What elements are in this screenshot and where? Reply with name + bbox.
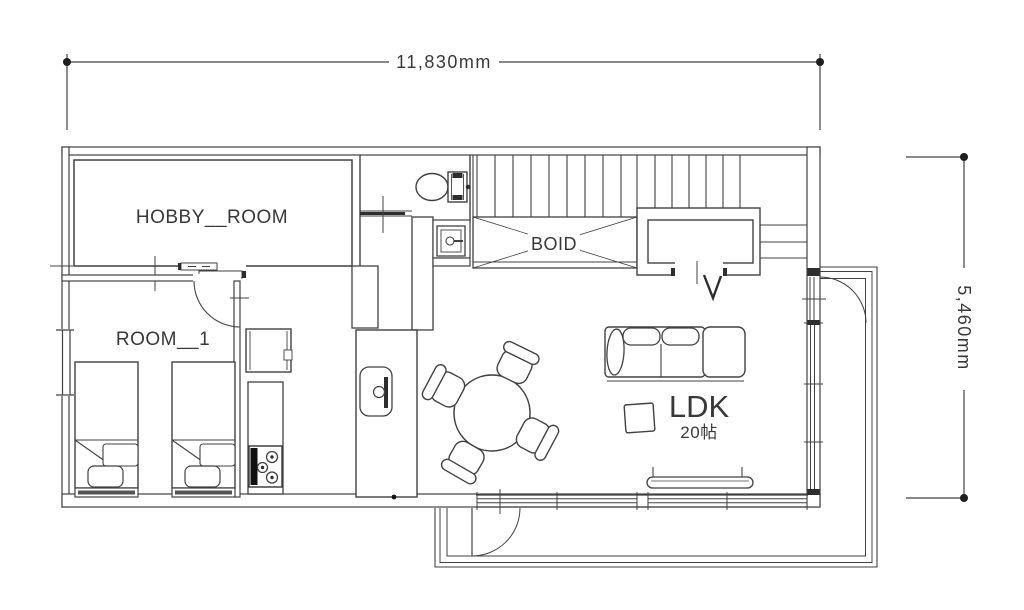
sofa [605, 327, 745, 381]
kitchen [246, 329, 417, 499]
folding-door-icon [704, 275, 721, 298]
room1-door-arc [194, 281, 240, 327]
sliding-door-leaf [181, 263, 217, 270]
closet [637, 208, 760, 298]
sofa-cushion [662, 328, 699, 345]
deck-entry-arc [472, 508, 520, 556]
height-dimension-label: 5,460mm [954, 285, 974, 371]
right-wall-openings [802, 268, 866, 495]
pillow [88, 466, 123, 487]
pillow [185, 466, 220, 487]
room-1-label: ROOM__1 [116, 329, 210, 350]
washbasin [437, 226, 465, 256]
ldk-size-label: 20帖 [680, 423, 717, 442]
hobby-room-label: HOBBY__ROOM [136, 207, 288, 228]
ldk-label: LDK [669, 389, 730, 424]
toilet [416, 172, 470, 202]
bed-1 [75, 362, 138, 497]
sofa-cushion [623, 328, 660, 345]
tv-board [647, 477, 753, 488]
void-label: BOID [531, 234, 577, 254]
bed-2 [172, 362, 235, 497]
floor-plan: HOBBY__ROOM ROOM__1 BOID LDK 20帖 11,830m… [0, 0, 1024, 610]
dining-set [420, 340, 560, 486]
floor-cushion [624, 403, 655, 433]
width-dimension-label: 11,830mm [396, 52, 492, 72]
deck-door-arc [820, 277, 866, 323]
